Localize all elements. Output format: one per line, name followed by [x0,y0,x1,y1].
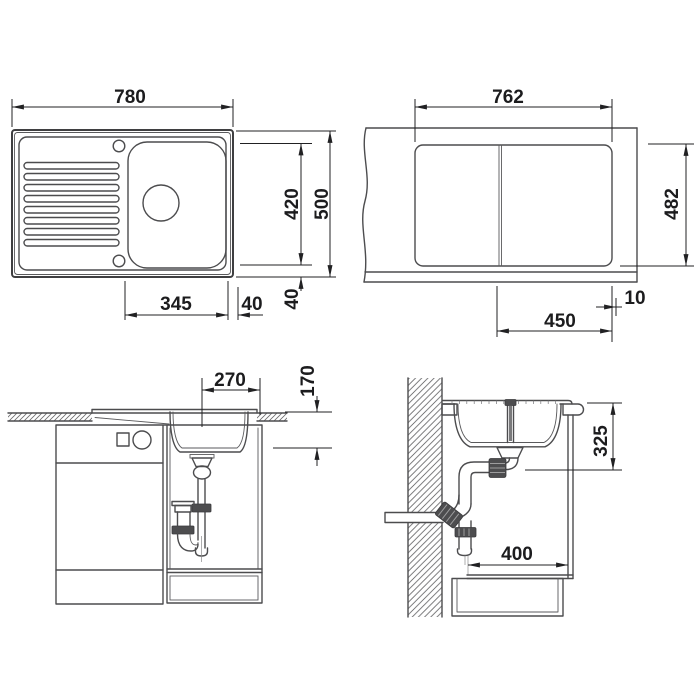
dim-cutout-depth: 482 [620,144,694,266]
sink-body-plan [12,130,233,277]
tap-hole-top [113,140,125,152]
dim-label-cutout-depth: 482 [662,188,683,220]
dim-edge-offset: 10 [596,288,646,316]
drainboard-ribs [24,163,119,247]
dim-bowl-zone-width: 345 40 [125,281,263,320]
cabinet-side [452,415,573,616]
drain-trap-front [172,455,214,563]
dim-label-overall-depth: 500 [312,188,333,220]
dishwasher-square-symbol [117,433,129,446]
sink-side-profile [443,400,572,447]
dim-label-bowl-zone-depth: 420 [282,188,303,220]
side-section-view: 325 400 [385,378,622,617]
dim-drain-offset: 450 [497,286,612,342]
dim-label-bowl-offset-right: 40 [241,294,262,315]
dim-label-cutout-width: 762 [492,87,524,108]
dim-label-drain-height: 325 [591,425,612,457]
dim-label-bowl-bottom-width: 270 [214,370,246,391]
dim-cutout-width: 762 [415,87,612,142]
dim-label-cabinet-depth: 400 [501,544,533,565]
dim-label-bowl-offset-bottom: 40 [282,288,303,309]
broken-edge [363,128,368,282]
technical-drawing-page: 780 500 420 40 345 40 [0,0,700,700]
worktop-plan [363,128,637,282]
dim-label-overall-width: 780 [114,87,146,108]
dim-overall-width: 780 [12,87,233,127]
tap-hole-bottom [113,255,125,267]
trap-union [455,528,476,538]
dim-bowl-bottom-width: 270 [202,370,260,427]
dim-label-bowl-zone-width: 345 [160,294,192,315]
dim-label-bowl-depth: 170 [298,365,319,397]
wall-section [406,378,444,617]
sink-dimension-diagram: 780 500 420 40 345 40 [0,0,700,700]
dishwasher-circle-symbol [133,431,151,449]
dim-overall-depth: 500 420 40 [236,131,336,310]
front-section-view: 270 170 [8,365,332,604]
dim-label-drain-offset: 450 [544,311,576,332]
pipe-coupling [192,504,211,512]
dim-cabinet-depth: 400 [468,544,568,565]
cutout-view: 762 482 450 10 [363,87,694,342]
trap-coupling [172,526,194,534]
dim-label-edge-offset: 10 [624,288,645,309]
overflow-pipe [505,400,516,443]
cutout-outline [415,145,612,266]
cutout-centerline [499,145,502,266]
sink-top-view: 780 500 420 40 345 40 [12,87,336,320]
drain-hole [143,185,179,221]
